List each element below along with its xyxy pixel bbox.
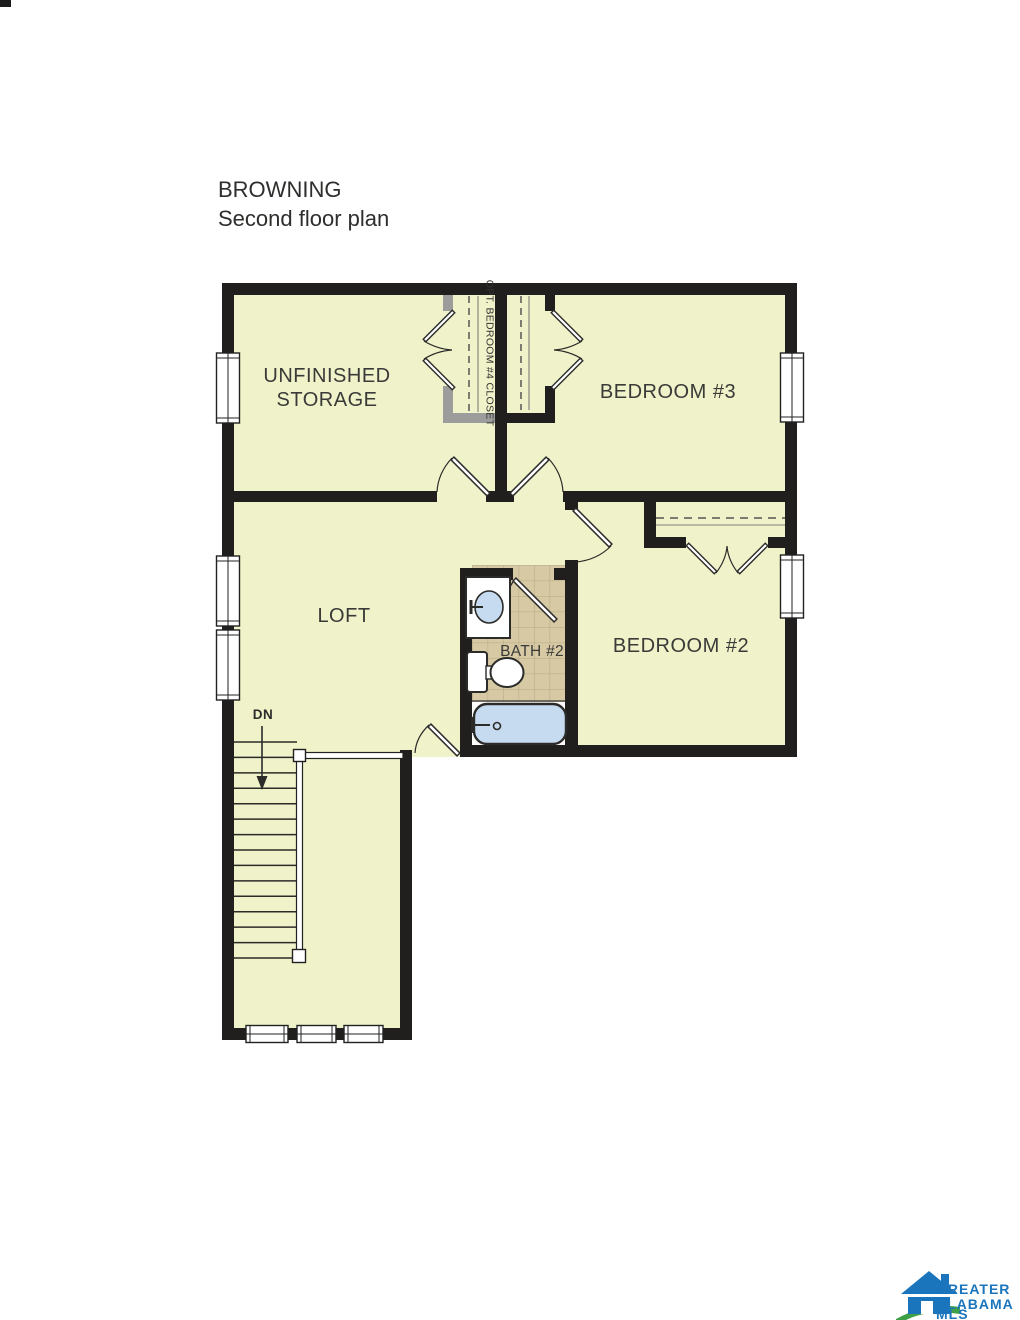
window-loft-left-2	[217, 630, 240, 700]
window-storage-left	[217, 353, 240, 423]
stairs-dn-label: DN	[253, 707, 274, 722]
room-label-bedroom3: BEDROOM #3	[600, 381, 736, 403]
wall-bottom-right-section	[460, 745, 797, 757]
floor-plan-canvas: BROWNING Second floor plan	[0, 0, 1020, 1320]
wall-top	[222, 283, 797, 295]
room-label-storage-line2: STORAGE	[277, 389, 378, 411]
newel-post-bottom	[293, 950, 306, 963]
wall-b2closet-bottom-left	[644, 537, 686, 548]
wall-b3closet-stub-top	[545, 283, 555, 311]
wall-closet-divider	[495, 283, 507, 502]
optional-wall-stub-bottom	[443, 386, 453, 413]
logo-door	[921, 1301, 933, 1314]
floorplan-page: BROWNING Second floor plan	[0, 0, 1020, 1320]
room-label-loft: LOFT	[317, 605, 370, 627]
opt-closet-label: OPT. BEDROOM #4 CLOSET	[484, 280, 496, 427]
wall-bath-top-right	[554, 568, 578, 580]
wall-b2closet-bottom-right	[768, 537, 797, 548]
room-label-bath2: BATH #2	[500, 643, 564, 660]
wall-wing-right	[400, 750, 412, 1040]
logo-text-line1: GREATER	[936, 1281, 1010, 1297]
mls-logo: GREATER ALABAMA MLS	[896, 1271, 1014, 1320]
window-bedroom2-right	[781, 555, 804, 618]
wall-hall-right	[563, 491, 797, 502]
bathtub	[471, 704, 566, 744]
wall-storage-loft	[222, 491, 437, 502]
window-loft-left-1	[217, 556, 240, 626]
wall-b3closet-bottom	[495, 413, 555, 423]
window-wing-bottom-2	[297, 1026, 336, 1043]
page-title: BROWNING	[218, 177, 341, 202]
window-bedroom3-right	[781, 353, 804, 422]
loft-railing-horizontal	[297, 753, 403, 759]
toilet-bowl	[491, 658, 524, 687]
window-wing-bottom-1	[246, 1026, 288, 1043]
room-label-bedroom2: BEDROOM #2	[613, 635, 749, 657]
stair-railing-vertical	[297, 753, 303, 955]
page-subtitle: Second floor plan	[218, 206, 389, 231]
window-wing-bottom-3	[344, 1026, 383, 1043]
scan-artifact	[0, 0, 11, 7]
room-label-storage-line1: UNFINISHED	[263, 365, 390, 387]
newel-post-top	[294, 750, 306, 762]
sink-vanity	[466, 577, 510, 638]
logo-text-line3: MLS	[936, 1306, 969, 1320]
tub-faucet	[471, 717, 475, 733]
toilet-tank	[467, 652, 487, 692]
